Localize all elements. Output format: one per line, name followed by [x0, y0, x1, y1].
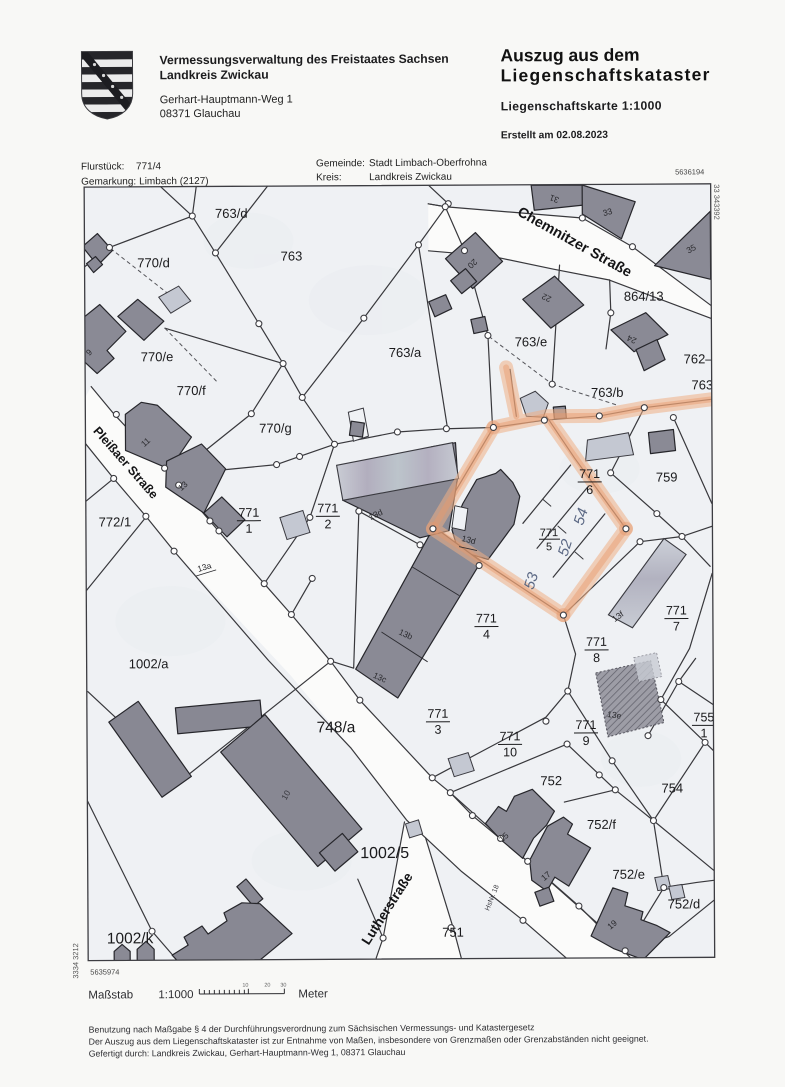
svg-text:752/e: 752/e — [612, 867, 645, 882]
svg-text:9: 9 — [583, 734, 590, 748]
svg-text:763/b: 763/b — [591, 385, 624, 400]
svg-text:771: 771 — [476, 611, 497, 625]
svg-text:8: 8 — [593, 651, 600, 665]
svg-text:Landkreis Zwickau: Landkreis Zwickau — [160, 68, 269, 83]
svg-text:748/a: 748/a — [317, 719, 356, 736]
svg-text:Gerhart-Hauptmann-Weg 1: Gerhart-Hauptmann-Weg 1 — [160, 94, 293, 107]
svg-text:763/: 763/ — [691, 377, 717, 392]
svg-text:Erstellt am 02.08.2023: Erstellt am 02.08.2023 — [501, 130, 608, 142]
svg-text:Stadt Limbach-Oberfrohna: Stadt Limbach-Oberfrohna — [369, 157, 487, 169]
svg-text:1: 1 — [701, 726, 708, 740]
svg-text:770/f: 770/f — [177, 383, 206, 398]
svg-text:771: 771 — [586, 635, 607, 649]
svg-text:771: 771 — [427, 707, 448, 721]
svg-text:771: 771 — [579, 467, 600, 481]
svg-text:1002/a: 1002/a — [129, 656, 170, 671]
svg-text:33 343392: 33 343392 — [712, 184, 721, 219]
svg-text:13e: 13e — [607, 709, 623, 721]
svg-text:763: 763 — [281, 248, 303, 263]
svg-text:4: 4 — [483, 627, 490, 641]
svg-text:Gemeinde:: Gemeinde: — [316, 158, 365, 169]
svg-text:Vermessungsverwaltung des Frei: Vermessungsverwaltung des Freistaates Sa… — [159, 52, 448, 68]
svg-text:6: 6 — [586, 483, 593, 497]
svg-text:5: 5 — [546, 541, 552, 553]
svg-text:752/d: 752/d — [668, 896, 701, 911]
svg-text:771/4: 771/4 — [136, 161, 162, 172]
svg-text:763/d: 763/d — [215, 206, 248, 221]
svg-text:Gefertigt durch: Landkreis Zwi: Gefertigt durch: Landkreis Zwickau, Gerh… — [89, 1047, 406, 1059]
svg-text:Flurstück:: Flurstück: — [81, 161, 124, 172]
svg-text:7: 7 — [673, 619, 680, 633]
svg-text:Liegenschaftskarte 1:1000: Liegenschaftskarte 1:1000 — [501, 99, 662, 114]
svg-text:Maßstab: Maßstab — [88, 989, 133, 1001]
svg-text:1002/k: 1002/k — [107, 930, 154, 947]
svg-text:755: 755 — [693, 710, 714, 724]
svg-text:Gemarkung:: Gemarkung: — [81, 176, 136, 187]
svg-text:3: 3 — [434, 723, 441, 737]
svg-text:771: 771 — [576, 718, 597, 732]
svg-text:Liegenschaftskataster: Liegenschaftskataster — [501, 64, 711, 85]
svg-text:772/1: 772/1 — [99, 514, 132, 529]
svg-text:08371 Glauchau: 08371 Glauchau — [160, 108, 241, 120]
svg-text:752: 752 — [540, 773, 562, 788]
svg-text:751: 751 — [442, 925, 464, 940]
svg-text:770/g: 770/g — [259, 421, 292, 436]
svg-text:1002/5: 1002/5 — [360, 845, 409, 862]
svg-text:Meter: Meter — [298, 988, 328, 1000]
svg-text:771: 771 — [317, 501, 338, 515]
svg-text:Der Auszug aus dem Liegenschaf: Der Auszug aus dem Liegenschaftskataster… — [89, 1034, 649, 1047]
svg-text:771: 771 — [500, 729, 521, 743]
svg-text:770/e: 770/e — [141, 349, 174, 364]
svg-text:30: 30 — [280, 983, 286, 989]
svg-text:1: 1 — [245, 522, 252, 536]
svg-text:752/f: 752/f — [587, 817, 616, 832]
svg-text:770/d: 770/d — [137, 255, 170, 270]
svg-text:10: 10 — [242, 983, 248, 989]
svg-text:3334 3212: 3334 3212 — [71, 943, 80, 978]
svg-text:Kreis:: Kreis: — [316, 172, 342, 183]
svg-text:2: 2 — [324, 517, 331, 531]
svg-text:20: 20 — [264, 983, 270, 989]
svg-text:771: 771 — [540, 527, 558, 539]
svg-text:754: 754 — [661, 780, 683, 795]
svg-text:Auszug aus dem: Auszug aus dem — [500, 45, 639, 66]
svg-text:10: 10 — [503, 745, 517, 759]
svg-text:5636194: 5636194 — [675, 167, 704, 176]
svg-text:771: 771 — [238, 506, 259, 520]
svg-text:1:1000: 1:1000 — [158, 989, 193, 1001]
svg-text:762–: 762– — [684, 351, 714, 366]
svg-text:771: 771 — [666, 603, 687, 617]
svg-text:864/13: 864/13 — [624, 289, 664, 304]
svg-text:5635974: 5635974 — [90, 967, 119, 976]
svg-text:759: 759 — [656, 470, 678, 485]
svg-text:Benutzung nach Maßgabe § 4 der: Benutzung nach Maßgabe § 4 der Durchführ… — [89, 1022, 535, 1034]
svg-text:Landkreis Zwickau: Landkreis Zwickau — [369, 172, 452, 183]
svg-text:763/a: 763/a — [389, 345, 422, 360]
svg-text:763/e: 763/e — [515, 334, 548, 349]
svg-text:Limbach (2127): Limbach (2127) — [139, 176, 209, 187]
